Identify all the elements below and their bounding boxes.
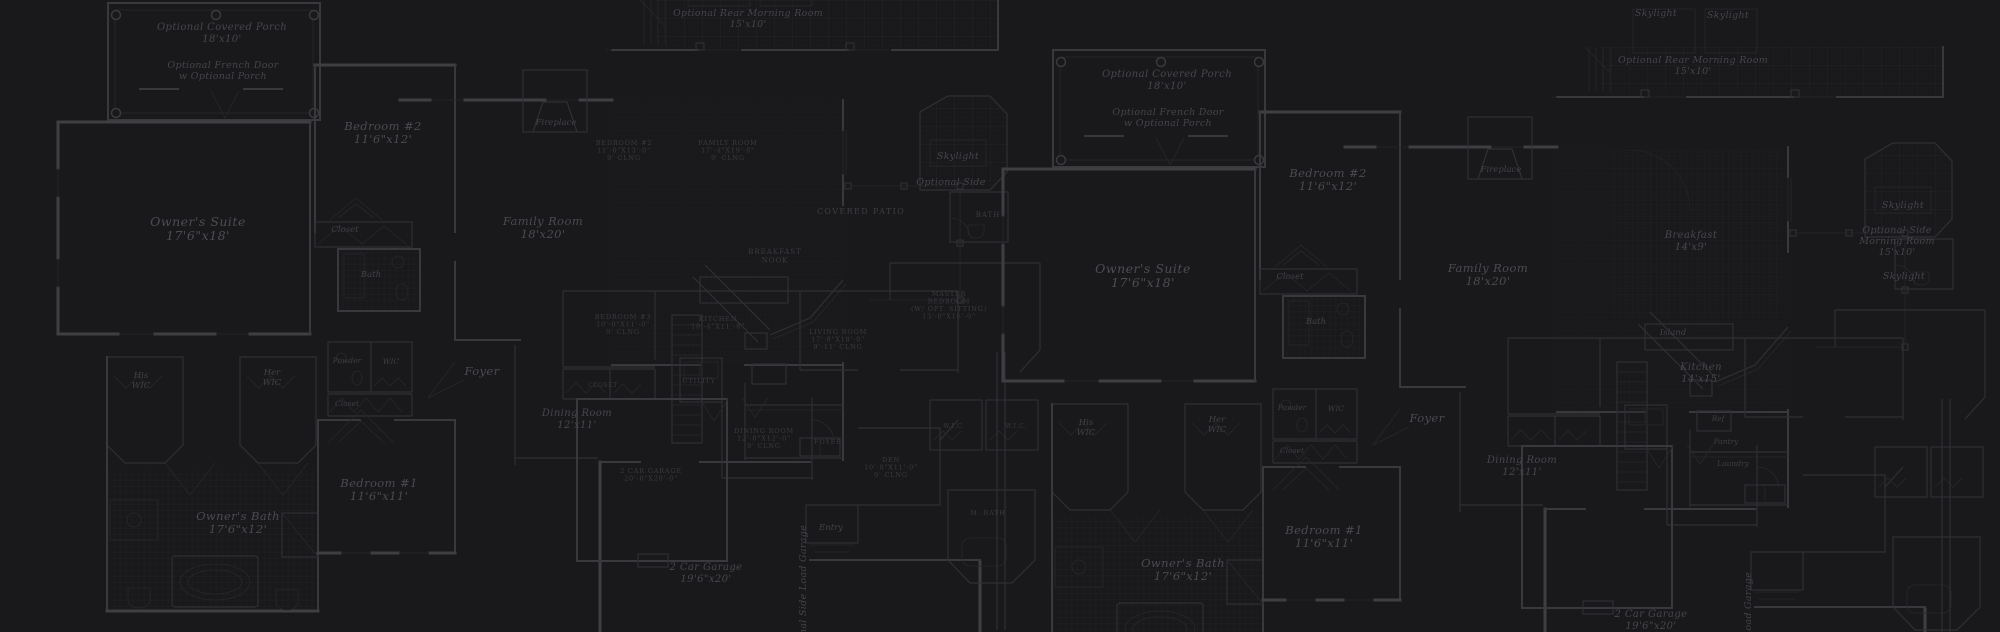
room-label-optional-side: Optional Side: [916, 177, 986, 188]
floor-plan-right: [1003, 9, 1985, 632]
room-label-optional-side: Optional SideMorning Room15'x10': [1858, 225, 1935, 258]
room-label-family-room: Family Room18'x20': [502, 214, 583, 241]
room-label-dining-room: Dining Room12'-0"x12'-0"9' Clng: [734, 427, 794, 450]
room-label-bedroom-2: Bedroom #211'6"x12': [343, 119, 421, 146]
room-label-closet: Closet: [331, 225, 359, 235]
room-label-skylight: Skylight: [937, 151, 979, 162]
room-label-optional-side-load-garage: Optional Side Load Garage: [1743, 572, 1754, 632]
room-label-foyer: Foyer: [463, 364, 500, 378]
room-label-utility: Utility: [682, 377, 716, 385]
room-label-2-car-garage: 2 Car Garage20'-0"x20'-0": [620, 467, 682, 483]
room-label-her: HerWIC: [1208, 415, 1227, 435]
room-label-bath: Bath: [360, 270, 381, 280]
floor-plan-left: [58, 0, 1040, 632]
room-label-living-room: Living Room17'-0"x18'-0"9'-11' Clng: [809, 328, 867, 351]
room-label-laundry: Laundry: [1716, 459, 1749, 468]
room-label-closet: Closet: [588, 382, 618, 389]
room-label-optional-side-load-garage: Optional Side Load Garage: [798, 525, 809, 632]
room-label-master: MasterBedroom(w/ Opt. Sitting)13'-0"x16'…: [911, 290, 987, 321]
room-label-family-room: Family Room18'x20': [1447, 261, 1528, 288]
room-label-kitchen: Kitchen14'x15': [1679, 362, 1722, 385]
room-label-skylight: Skylight: [1635, 8, 1677, 19]
room-label-closet: Closet: [1276, 272, 1304, 282]
room-label-closet: Closet: [335, 399, 360, 408]
room-label-w-i-c: W.I.C.: [1005, 423, 1026, 430]
room-label-covered-patio: Covered Patio: [817, 207, 905, 216]
room-label-dining-room: Dining Room12'x11': [541, 408, 612, 431]
room-label-his: HisWIC: [132, 371, 151, 391]
room-label-bath: Bath: [1305, 317, 1326, 327]
room-label-powder: Powder: [332, 356, 362, 365]
room-label-optional-french-door: Optional French Doorw Optional Porch: [167, 60, 279, 82]
floor-plan-drawing: Optional Covered Porch18'x10'Optional Fr…: [0, 0, 2000, 632]
room-label-dining-room: Dining Room12'x11': [1486, 455, 1557, 478]
room-label-m-bath: M. Bath: [970, 509, 1006, 517]
room-label-wic: WIC: [383, 357, 400, 366]
room-label-bedroom-1: Bedroom #111'6"x11': [1284, 523, 1362, 550]
room-label-fireplace: Fireplace: [1480, 165, 1522, 175]
room-label-owner-s-suite: Owner's Suite17'6"x18': [1095, 261, 1191, 290]
room-label-her: HerWIC: [263, 368, 282, 388]
room-label-entry: Entry: [818, 523, 843, 533]
room-label-island: Island: [1659, 328, 1687, 338]
room-label-fireplace: Fireplace: [535, 118, 577, 128]
room-label-den: Den10'-0"x11'-0"9' Clng: [864, 456, 918, 479]
room-label-foyer: Foyer: [814, 438, 842, 446]
room-label-2-car-garage: 2 Car Garage19'6"x20': [1614, 609, 1688, 632]
room-label-bedroom-1: Bedroom #111'6"x11': [339, 476, 417, 503]
room-label-ref: Ref: [1711, 414, 1726, 423]
room-label-optional-french-door: Optional French Doorw Optional Porch: [1112, 107, 1224, 129]
room-label-pantry: Pantry: [1713, 437, 1740, 446]
room-label-skylight: Skylight: [1707, 10, 1749, 21]
room-label-skylight: Skylight: [1883, 271, 1925, 282]
room-label-skylight: Skylight: [1882, 200, 1924, 211]
room-label-his: HisWIC: [1077, 418, 1096, 438]
room-label-bath: Bath: [976, 211, 1001, 219]
room-label-bedroom-2: Bedroom #211'6"x12': [1288, 166, 1366, 193]
room-label-optional-covered-porch: Optional Covered Porch18'x10': [1102, 69, 1232, 92]
blueprint-collage-background: Optional Covered Porch18'x10'Optional Fr…: [0, 0, 2000, 632]
room-label-powder: Powder: [1277, 403, 1307, 412]
room-label-optional-covered-porch: Optional Covered Porch18'x10': [157, 22, 287, 45]
room-label-2-car-garage: 2 Car Garage19'6"x20': [669, 562, 743, 585]
room-label-owner-s-suite: Owner's Suite17'6"x18': [150, 214, 246, 243]
room-label-foyer: Foyer: [1408, 411, 1445, 425]
room-label-closet: Closet: [1280, 446, 1305, 455]
room-label-wic: WIC: [1328, 404, 1345, 413]
room-label-w-i-c: W.I.C.: [943, 423, 964, 430]
room-label-kitchen: Kitchen10'-4"x11'-8": [691, 315, 745, 331]
